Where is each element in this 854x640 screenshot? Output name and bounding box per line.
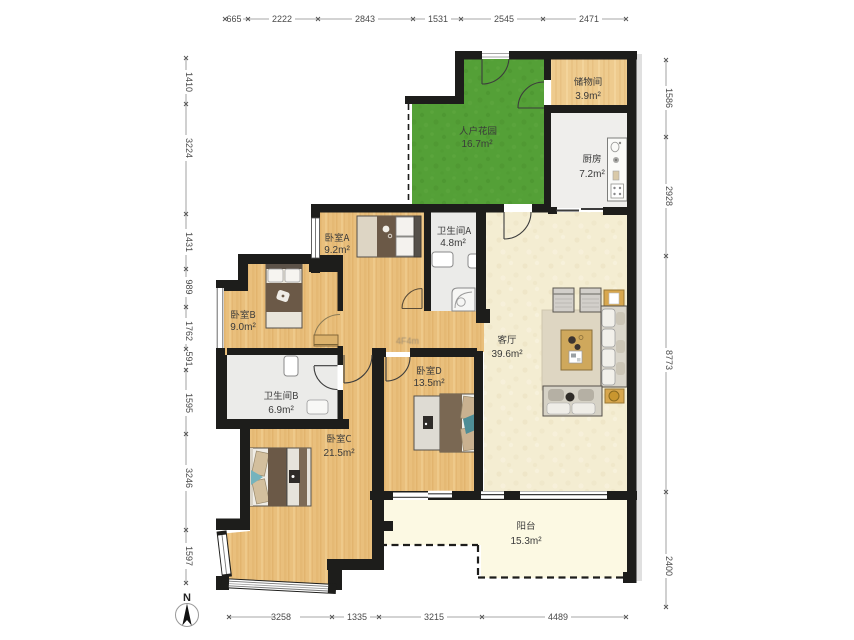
svg-text:2843: 2843: [355, 14, 375, 24]
svg-text:3224: 3224: [184, 138, 194, 158]
svg-text:665: 665: [226, 14, 241, 24]
svg-text:1762: 1762: [184, 321, 194, 341]
svg-text:3215: 3215: [424, 612, 444, 622]
svg-text:N: N: [183, 592, 191, 604]
svg-text:1410: 1410: [184, 72, 194, 92]
svg-text:3.9m²: 3.9m²: [575, 91, 601, 102]
svg-text:6.9m²: 6.9m²: [268, 405, 294, 416]
svg-text:7.2m²: 7.2m²: [579, 169, 605, 180]
svg-text:3246: 3246: [184, 468, 194, 488]
svg-text:2222: 2222: [272, 14, 292, 24]
svg-text:16.7m²: 16.7m²: [461, 139, 493, 150]
svg-text:2545: 2545: [494, 14, 514, 24]
svg-text:3258: 3258: [271, 612, 291, 622]
svg-text:1595: 1595: [184, 393, 194, 413]
svg-text:1586: 1586: [664, 88, 674, 108]
svg-text:591: 591: [184, 351, 194, 366]
svg-text:1597: 1597: [184, 546, 194, 566]
svg-text:39.6m²: 39.6m²: [491, 349, 523, 360]
svg-text:2400: 2400: [664, 556, 674, 576]
svg-text:8773: 8773: [664, 350, 674, 370]
svg-text:13.5m²: 13.5m²: [413, 378, 445, 389]
svg-text:4.8m²: 4.8m²: [440, 238, 466, 249]
svg-text:4F4m: 4F4m: [396, 336, 419, 346]
svg-text:1335: 1335: [347, 612, 367, 622]
svg-text:15.3m²: 15.3m²: [510, 536, 542, 547]
svg-text:9.0m²: 9.0m²: [230, 322, 256, 333]
svg-text:2928: 2928: [664, 186, 674, 206]
svg-text:21.5m²: 21.5m²: [323, 448, 355, 459]
svg-text:989: 989: [184, 279, 194, 294]
svg-text:1431: 1431: [184, 232, 194, 252]
svg-text:1531: 1531: [428, 14, 448, 24]
svg-text:4489: 4489: [548, 612, 568, 622]
svg-text:2471: 2471: [579, 14, 599, 24]
svg-text:9.2m²: 9.2m²: [324, 245, 350, 256]
